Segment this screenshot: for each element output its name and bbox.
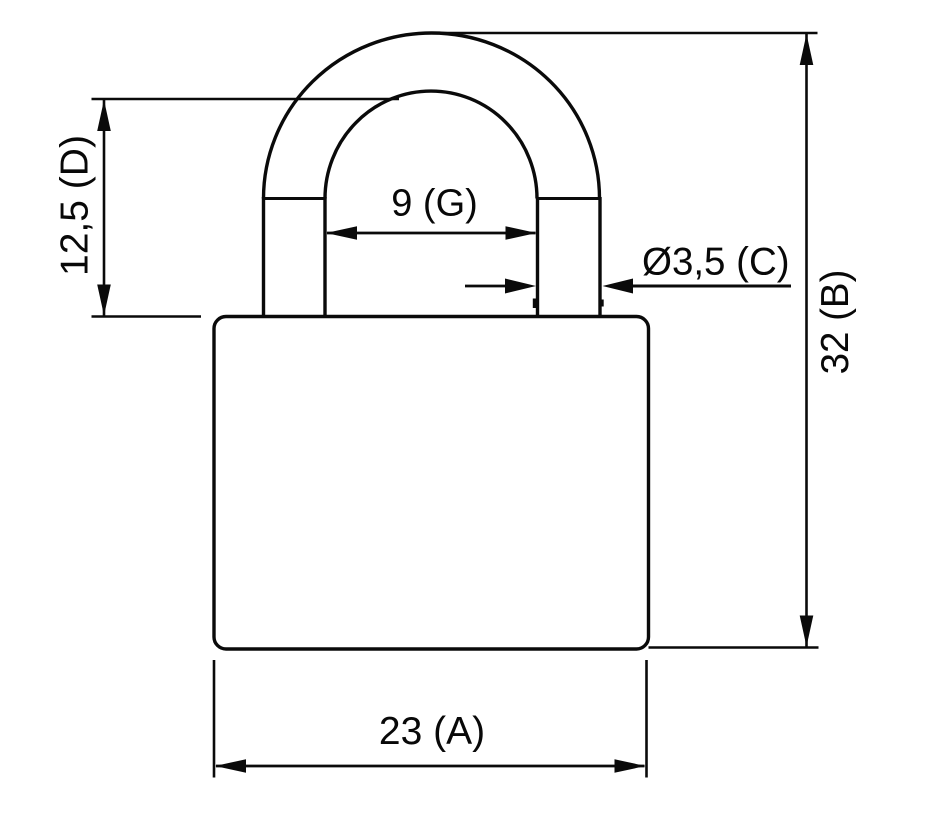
svg-text:Ø3,5 (C): Ø3,5 (C) [642,241,790,284]
svg-text:32 (B): 32 (B) [814,270,857,375]
svg-text:12,5 (D): 12,5 (D) [54,135,97,276]
svg-text:9 (G): 9 (G) [391,183,478,225]
svg-text:23 (A): 23 (A) [379,710,485,753]
